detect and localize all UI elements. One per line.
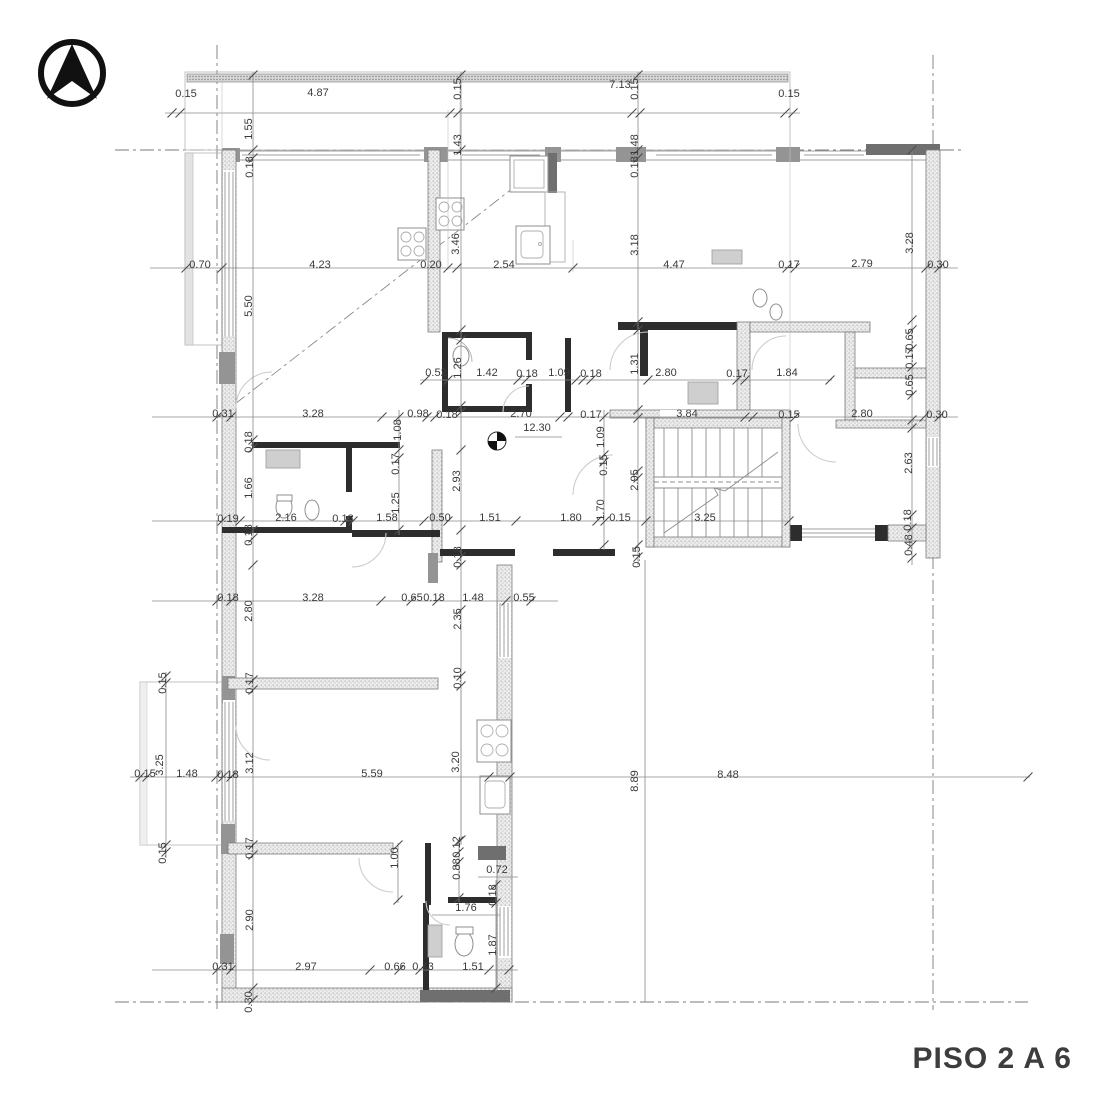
dimension-label: 0.17 bbox=[244, 837, 256, 858]
fixtures bbox=[266, 156, 782, 957]
floor-plan-page: 0.154.870.157.130.150.151.551.431.480.18… bbox=[0, 0, 1100, 1100]
dimension-label: 0.65 bbox=[904, 374, 916, 395]
dimension-label: 0.72 bbox=[486, 864, 507, 876]
dimension-label: 0.12 bbox=[451, 836, 463, 857]
dimension-label: 7.13 bbox=[609, 79, 630, 91]
dimension-label: 1.76 bbox=[455, 902, 476, 914]
dimension-label: 0.15 bbox=[609, 512, 630, 524]
dimension-label: 1.66 bbox=[243, 477, 255, 498]
dimension-label: 3.25 bbox=[154, 754, 166, 775]
fridge-icon bbox=[510, 156, 548, 192]
dimension-label: 3.84 bbox=[676, 408, 697, 420]
dimension-label: 0.17 bbox=[778, 259, 799, 271]
windows bbox=[223, 155, 939, 958]
shower-tray bbox=[428, 925, 442, 957]
dimension-label: 0.17 bbox=[580, 409, 601, 421]
dimension-label: 0.98 bbox=[407, 408, 428, 420]
dimension-label: 0.17 bbox=[726, 368, 747, 380]
dimension-label: 0.18 bbox=[423, 592, 444, 604]
dimension-label: 2.80 bbox=[851, 408, 872, 420]
dimension-label: 1.51 bbox=[479, 512, 500, 524]
sink-icon bbox=[516, 226, 550, 264]
dimension-label: 1.00 bbox=[389, 847, 401, 868]
dimension-label: 0.18 bbox=[243, 431, 255, 452]
dimension-label: 4.23 bbox=[309, 259, 330, 271]
dimension-label: 0.18 bbox=[902, 509, 914, 530]
dimension-label: 0.15 bbox=[175, 88, 196, 100]
dimension-label: 12.30 bbox=[523, 422, 551, 434]
dimension-label: 3.28 bbox=[904, 232, 916, 253]
stove-icon bbox=[477, 720, 511, 762]
dimension-label: 3.18 bbox=[629, 234, 641, 255]
dimension-label: 0.15 bbox=[157, 672, 169, 693]
dimension-label: 0.31 bbox=[212, 408, 233, 420]
dimension-label: 0.18 bbox=[217, 769, 238, 781]
dimension-label: 0.18 bbox=[244, 156, 256, 177]
dimension-label: 5.59 bbox=[361, 768, 382, 780]
dimension-label: 2.97 bbox=[295, 961, 316, 973]
dimension-label: 3.46 bbox=[450, 233, 462, 254]
stove-icon bbox=[436, 198, 464, 230]
dimension-label: 2.35 bbox=[452, 608, 464, 629]
dimension-label: 1.09 bbox=[595, 426, 607, 447]
dimension-label: 2.90 bbox=[244, 909, 256, 930]
dimension-label: 1.84 bbox=[776, 367, 797, 379]
bidet-icon bbox=[770, 304, 782, 320]
dimension-label: 0.17 bbox=[904, 347, 916, 368]
dimension-label: 3.28 bbox=[302, 592, 323, 604]
dimension-label: 0.18 bbox=[243, 524, 255, 545]
dimension-label: 3.12 bbox=[244, 752, 256, 773]
dimension-label: 4.87 bbox=[307, 87, 328, 99]
dimension-label: 0.15 bbox=[778, 409, 799, 421]
dimension-label: 0.20 bbox=[420, 259, 441, 271]
dimension-label: 1.26 bbox=[452, 357, 464, 378]
dimension-label: 0.15 bbox=[452, 78, 464, 99]
dimension-label: 0.10 bbox=[452, 667, 464, 688]
dimension-label: 0.88 bbox=[451, 858, 463, 879]
dimension-label: 1.09 bbox=[548, 367, 569, 379]
plan-title: PISO 2 A 6 bbox=[912, 1042, 1072, 1075]
shower-tray bbox=[688, 382, 718, 404]
dimension-label: 0.17 bbox=[244, 672, 256, 693]
dimension-label: 1.42 bbox=[476, 367, 497, 379]
dimension-label: 3.25 bbox=[694, 512, 715, 524]
dimension-label: 1.58 bbox=[376, 512, 397, 524]
dimension-label: 1.08 bbox=[392, 419, 404, 440]
dimension-label: 0.65 bbox=[904, 328, 916, 349]
appliance bbox=[478, 846, 506, 860]
dimension-label: 0.17 bbox=[390, 453, 402, 474]
dimension-label: 1.31 bbox=[629, 353, 641, 374]
dimension-label: 5.50 bbox=[243, 295, 255, 316]
dimension-label: 0.50 bbox=[429, 512, 450, 524]
dimension-label: 2.79 bbox=[851, 258, 872, 270]
dimension-label: 0.43 bbox=[412, 961, 433, 973]
dimension-label: 0.30 bbox=[243, 991, 255, 1012]
dimension-label: 0.18 bbox=[580, 368, 601, 380]
dimension-label: 1.48 bbox=[462, 592, 483, 604]
dimension-label: 0.31 bbox=[212, 961, 233, 973]
dimension-label: 0.55 bbox=[513, 592, 534, 604]
dimension-label: 0.18 bbox=[629, 156, 641, 177]
dimension-label: 1.25 bbox=[390, 492, 402, 513]
dimension-label: 0.48 bbox=[903, 534, 915, 555]
dimension-label: 1.43 bbox=[452, 134, 464, 155]
dimension-label: 1.70 bbox=[595, 499, 607, 520]
dimension-label: 0.65 bbox=[401, 592, 422, 604]
stove-icon bbox=[398, 228, 426, 260]
toilet-icon bbox=[455, 927, 473, 956]
sink-icon bbox=[480, 776, 510, 814]
dimension-label: 1.87 bbox=[487, 934, 499, 955]
north-arrow-icon bbox=[41, 42, 103, 104]
shower-tray bbox=[266, 450, 300, 468]
dimension-label: 8.89 bbox=[629, 770, 641, 791]
dimension-label: 0.18 bbox=[452, 546, 464, 567]
dimension-label: 0.30 bbox=[927, 259, 948, 271]
dimension-label: 0.15 bbox=[134, 768, 155, 780]
dimension-label: 3.28 bbox=[302, 408, 323, 420]
dimension-label: 3.20 bbox=[450, 751, 462, 772]
terrace-and-balconies bbox=[140, 72, 790, 845]
dimension-label: 0.18 bbox=[487, 884, 499, 905]
dimension-label: 1.51 bbox=[462, 961, 483, 973]
dimension-label: 2.93 bbox=[451, 470, 463, 491]
dimension-label: 0.19 bbox=[217, 513, 238, 525]
dimension-label: 0.18 bbox=[332, 513, 353, 525]
bidet-icon bbox=[305, 500, 319, 520]
walls bbox=[219, 144, 940, 1002]
dimension-label: 2.54 bbox=[493, 259, 514, 271]
floor-plan-drawing: 0.154.870.157.130.150.151.551.431.480.18… bbox=[0, 0, 1100, 1100]
dimension-labels: 0.154.870.157.130.150.151.551.431.480.18… bbox=[134, 78, 948, 1012]
dimension-label: 1.48 bbox=[629, 134, 641, 155]
dimension-label: 2.80 bbox=[655, 367, 676, 379]
level-marker bbox=[488, 432, 506, 450]
dimension-label: 2.16 bbox=[275, 512, 296, 524]
dimension-label: 1.80 bbox=[560, 512, 581, 524]
dimension-label: 2.80 bbox=[243, 600, 255, 621]
dimension-label: 2.63 bbox=[903, 452, 915, 473]
dimension-label: 0.52 bbox=[425, 367, 446, 379]
dimension-label: 0.18 bbox=[436, 409, 457, 421]
dimension-label: 0.66 bbox=[384, 961, 405, 973]
dimension-label: 4.47 bbox=[663, 259, 684, 271]
dimension-label: 2.95 bbox=[629, 469, 641, 490]
dimension-label: 0.18 bbox=[516, 368, 537, 380]
dimension-label: 0.18 bbox=[217, 592, 238, 604]
dimension-label: 0.15 bbox=[629, 78, 641, 99]
toilet-icon bbox=[753, 289, 767, 307]
dimension-label: 1.55 bbox=[243, 118, 255, 139]
dimension-label: 0.15 bbox=[631, 546, 643, 567]
dimension-label: 0.30 bbox=[926, 409, 947, 421]
dimension-label: 0.15 bbox=[598, 454, 610, 475]
dimension-label: 2.70 bbox=[510, 408, 531, 420]
dimension-label: 0.70 bbox=[189, 259, 210, 271]
dimension-label: 0.15 bbox=[778, 88, 799, 100]
dimension-label: 1.48 bbox=[176, 768, 197, 780]
dimension-label: 8.48 bbox=[717, 769, 738, 781]
dimension-label: 0.15 bbox=[157, 842, 169, 863]
